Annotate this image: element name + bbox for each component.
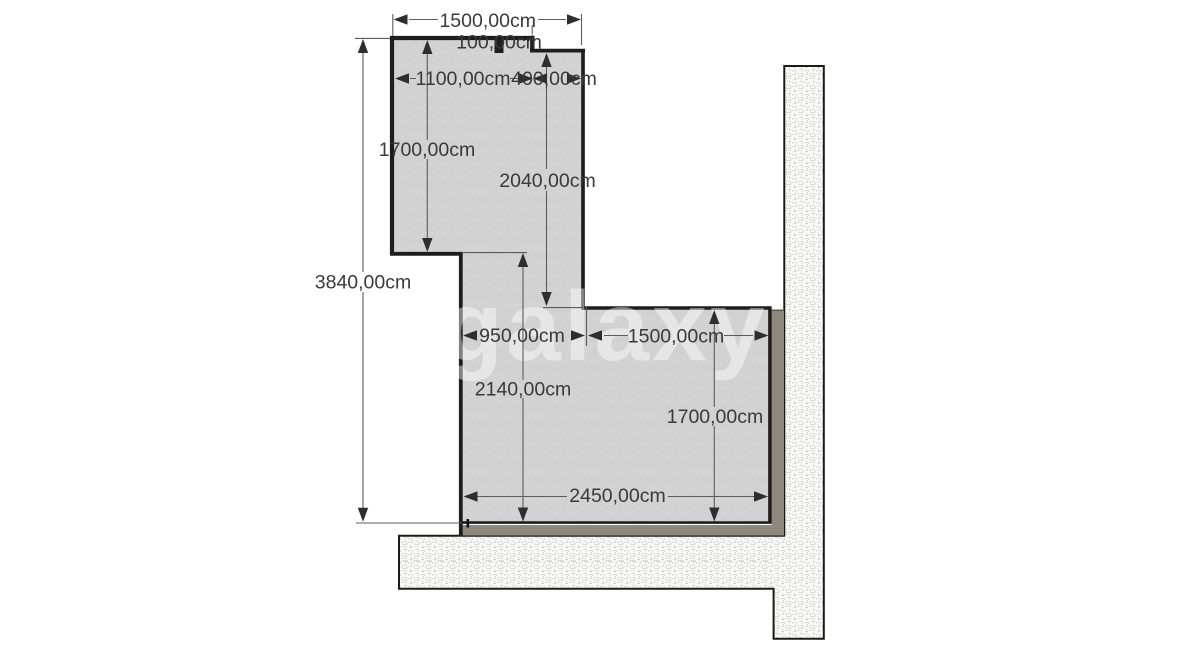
svg-text:1500,00cm: 1500,00cm — [628, 326, 724, 348]
svg-text:1700,00cm: 1700,00cm — [667, 406, 763, 428]
svg-text:1500,00cm: 1500,00cm — [439, 10, 535, 32]
svg-text:100,00cm: 100,00cm — [456, 32, 542, 54]
svg-text:3840,00cm: 3840,00cm — [315, 272, 411, 294]
svg-text:400,00cm: 400,00cm — [511, 68, 597, 90]
svg-text:1100,00cm: 1100,00cm — [415, 68, 510, 90]
svg-text:2450,00cm: 2450,00cm — [569, 485, 665, 507]
svg-text:2140,00cm: 2140,00cm — [475, 379, 571, 401]
svg-text:950,00cm: 950,00cm — [479, 325, 565, 347]
svg-text:1700,00cm: 1700,00cm — [379, 139, 475, 161]
svg-text:2040,00cm: 2040,00cm — [499, 170, 595, 192]
